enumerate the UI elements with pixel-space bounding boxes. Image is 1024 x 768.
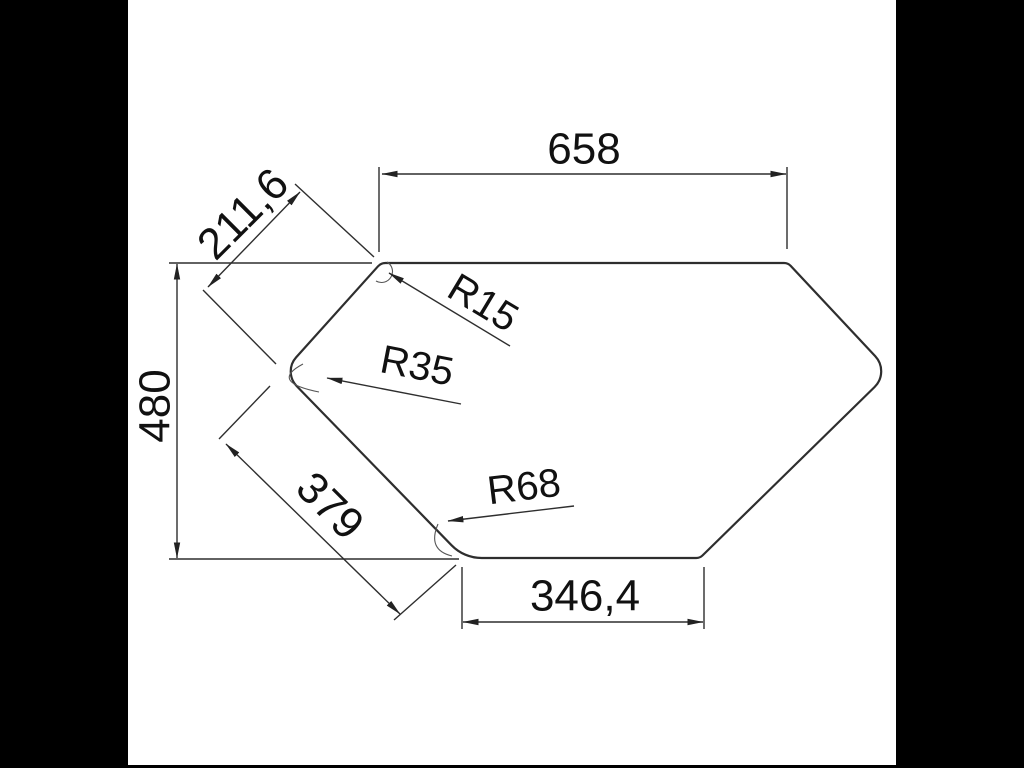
dim-bottom-width-label: 346,4: [530, 572, 640, 621]
dim-height-label: 480: [131, 369, 180, 442]
radius-r68-label: R68: [485, 461, 563, 514]
sink-dimension-diagram: 658 211,6 480 379 346,4 R15 R35: [0, 0, 1024, 768]
dim-top-width-label: 658: [547, 125, 620, 174]
technical-drawing-page: 658 211,6 480 379 346,4 R15 R35: [0, 0, 1024, 768]
